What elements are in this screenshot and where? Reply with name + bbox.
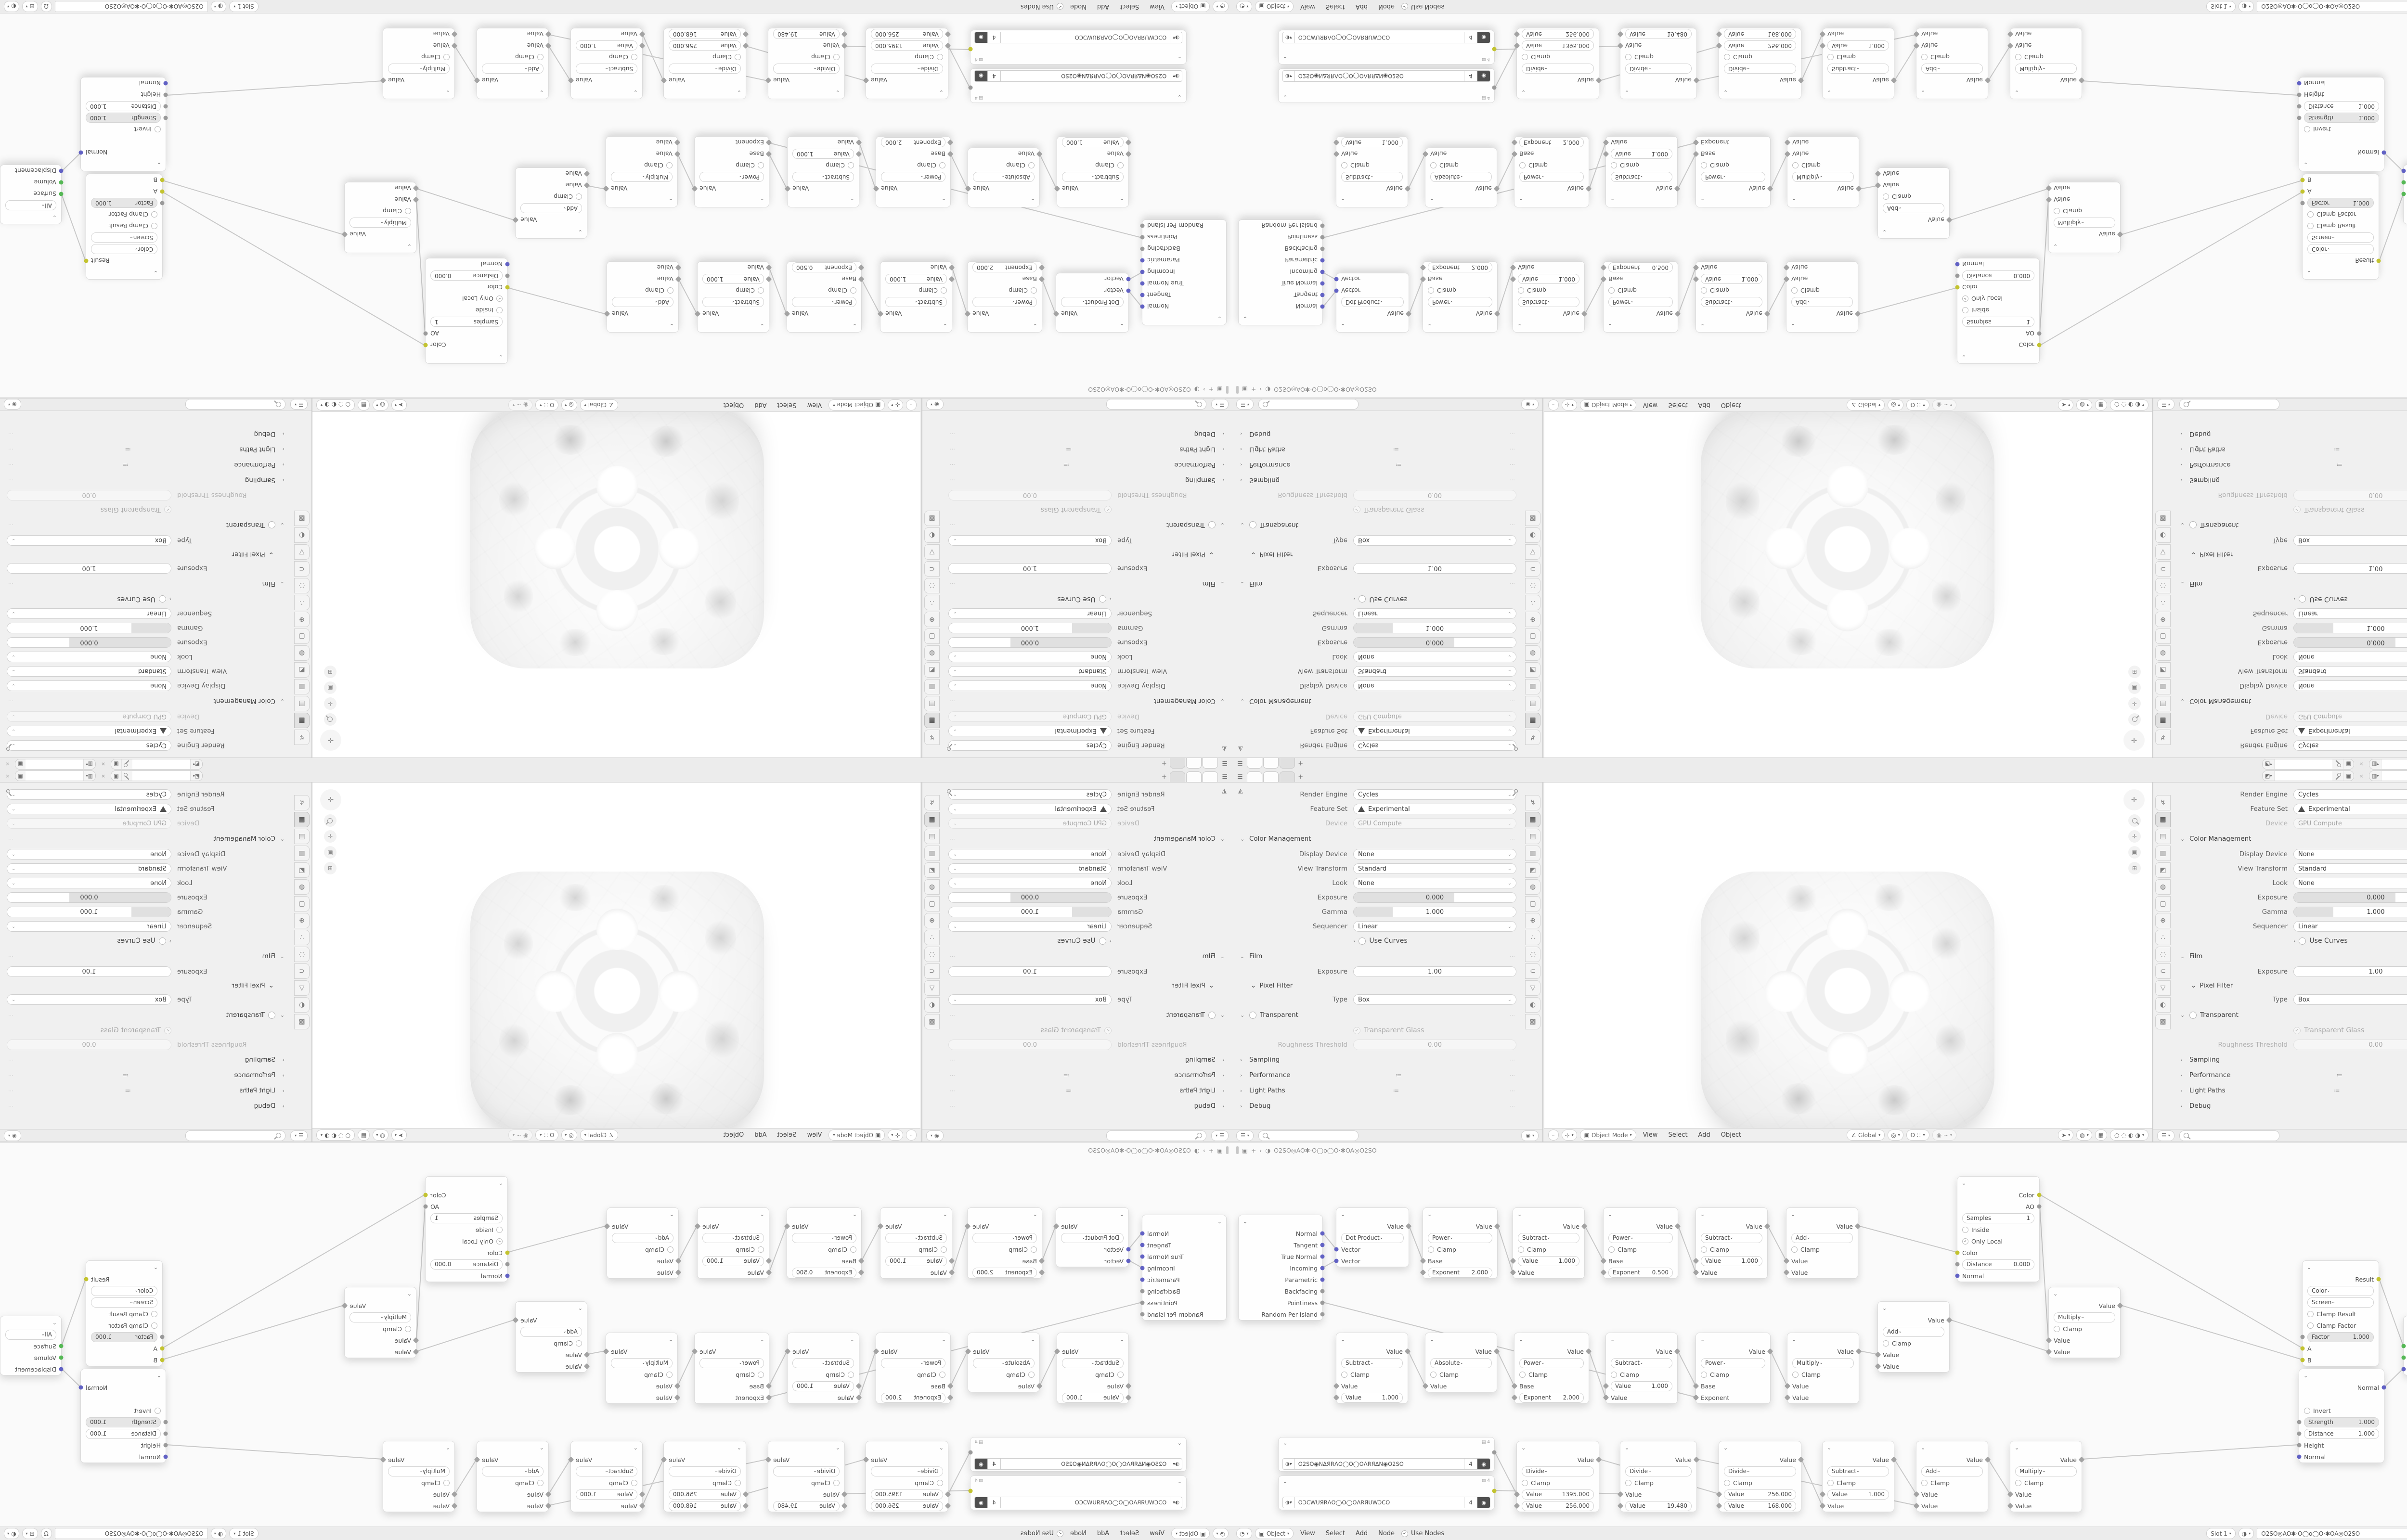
- checkbox-clamp[interactable]: [848, 1372, 854, 1378]
- pin-icon[interactable]: [2332, 771, 2343, 781]
- panel-section-film[interactable]: ⌄Film⋯: [944, 948, 1230, 964]
- node-divide[interactable]: ⌄ValueDivide⌄ClampValueValue19.480: [1620, 1441, 1697, 1512]
- node-dropdown-add[interactable]: Add⌄: [612, 297, 673, 308]
- node-header[interactable]: ⌄▤ 4: [1279, 1437, 1494, 1448]
- node-field-value[interactable]: Value168.000: [1724, 1501, 1796, 1511]
- node-header[interactable]: ⌄: [571, 1441, 642, 1454]
- node-header[interactable]: ⌄: [1606, 1333, 1677, 1346]
- select-sequencer[interactable]: Linear⌄: [948, 608, 1112, 619]
- node-field-samples[interactable]: Samples1: [430, 1213, 503, 1223]
- node-dropdown-divide[interactable]: Divide⌄: [1625, 1466, 1692, 1476]
- add-workspace-button[interactable]: +: [1296, 758, 1306, 768]
- use-nodes-checkbox[interactable]: ✓: [1401, 1530, 1408, 1537]
- node-dropdown-divide[interactable]: Divide⌄: [1522, 64, 1594, 74]
- socket-out[interactable]: [1320, 1232, 1325, 1236]
- node-field-value[interactable]: Value1.000: [1518, 1256, 1579, 1266]
- checkbox-inside[interactable]: [496, 1227, 503, 1233]
- panel-section-film[interactable]: ⌄Film⋯: [2, 576, 290, 592]
- xray-icon[interactable]: ▦: [358, 399, 370, 411]
- menu-view[interactable]: View: [1639, 401, 1662, 409]
- node-dropdown-subtract[interactable]: Subtract⌄: [1518, 1233, 1579, 1243]
- socket-in[interactable]: [505, 262, 510, 267]
- checkbox-clamp[interactable]: [1117, 1372, 1124, 1378]
- search-input[interactable]: [2179, 399, 2279, 410]
- socket-out[interactable]: [969, 1450, 973, 1455]
- socket-out[interactable]: [1492, 1489, 1497, 1493]
- view-layer-selector[interactable]: ▥▾ ▣: [15, 770, 96, 781]
- node-dropdown-multiply[interactable]: Multiply⌄: [611, 172, 673, 182]
- panel-section-light-paths[interactable]: ›Light Paths≔⋯: [944, 442, 1230, 457]
- shading-mode-group[interactable]: ○ ◌ ◐ ◑ ▾: [316, 1129, 355, 1141]
- menu-view[interactable]: View: [1146, 1530, 1168, 1537]
- socket-in[interactable]: [505, 1251, 510, 1255]
- panel-section-light-paths[interactable]: ›Light Paths≔⋯: [2, 1083, 290, 1098]
- checkbox-clamp[interactable]: [758, 163, 764, 169]
- properties-tab-tool[interactable]: ↯: [2155, 730, 2171, 745]
- select-feature-set[interactable]: Experimental⌄: [1353, 726, 1516, 736]
- node-header[interactable]: ⌄: [1957, 1177, 2039, 1189]
- select-feature-set[interactable]: Experimental⌄: [7, 804, 171, 814]
- navigation-gizmo[interactable]: ✛: [320, 730, 341, 751]
- properties-tab-object[interactable]: ▢: [924, 896, 940, 911]
- panel-section-performance[interactable]: ›Performance≔⋯: [944, 457, 1230, 473]
- select-display-device[interactable]: None⌄: [1353, 849, 1516, 860]
- properties-tab-object[interactable]: ▢: [1525, 629, 1540, 644]
- socket-out[interactable]: [1140, 1278, 1145, 1282]
- node-dropdown-screen[interactable]: Screen⌄: [91, 233, 157, 243]
- fake-user-icon[interactable]: ◉: [974, 70, 987, 82]
- node-dropdown-add[interactable]: Add⌄: [1791, 297, 1853, 308]
- snapping-group[interactable]: Ω∷▾: [1906, 1129, 1929, 1141]
- menu-select[interactable]: Select: [1116, 1530, 1143, 1537]
- properties-tab-texture[interactable]: ▩: [924, 1014, 940, 1029]
- node-image-texture[interactable]: ⌄▤ 4◑▾O2SO◉NΔЯRΛO◯O◯OΛRЯΔN◉O2SO4◉: [1278, 1437, 1495, 1472]
- grid-toggle-icon[interactable]: ⊞: [324, 666, 336, 678]
- node-field-factor[interactable]: Factor1.000: [2307, 1332, 2374, 1342]
- node-header[interactable]: ⌄: [1916, 86, 1988, 99]
- checkbox-transparent-glass[interactable]: ✓: [1353, 1027, 1360, 1034]
- panel-section-performance[interactable]: ›Performance≔⋯: [2174, 457, 2407, 473]
- select-render-engine[interactable]: Cycles⌄: [2293, 789, 2407, 800]
- node-header[interactable]: ⌄: [606, 1333, 677, 1346]
- node-field-value[interactable]: Value1.000: [576, 1489, 637, 1500]
- checkbox-clamp[interactable]: [1341, 163, 1347, 169]
- node-subtract[interactable]: ⌄ValueSubtract⌄ClampValue1.000Value: [787, 1333, 859, 1404]
- properties-tab-modifiers[interactable]: ⊕: [924, 913, 940, 928]
- node-dropdown-subtract[interactable]: Subtract⌄: [1611, 1358, 1672, 1368]
- node-field-value[interactable]: Value256.000: [1724, 1489, 1796, 1500]
- checkbox-clamp-factor[interactable]: [151, 212, 157, 218]
- node-generic[interactable]: ⌄NormalInvertStrength1.000Distance1.000H…: [2299, 1369, 2384, 1463]
- filter-icon[interactable]: ☰▾: [1236, 1130, 1254, 1141]
- socket-out[interactable]: [2037, 1205, 2042, 1209]
- node-field-distance[interactable]: Distance1.000: [86, 1429, 161, 1439]
- select-device[interactable]: GPU Compute⌄: [7, 711, 171, 722]
- app-menu-icon[interactable]: ☰: [1222, 759, 1228, 767]
- socket-out[interactable]: [1320, 1301, 1325, 1305]
- checkbox-clamp[interactable]: [758, 1372, 764, 1378]
- socket-out[interactable]: [1320, 293, 1325, 297]
- panel-section-debug[interactable]: ›Debug⋯: [944, 426, 1230, 442]
- socket-out[interactable]: [1320, 235, 1325, 240]
- view-layer-name-field[interactable]: [2381, 759, 2407, 769]
- checkbox-clamp[interactable]: [405, 208, 411, 215]
- node-subtract[interactable]: ⌄ValueSubtract⌄ClampValue1.000Value: [1513, 1207, 1585, 1279]
- socket-in[interactable]: [164, 1443, 168, 1448]
- properties-tab-tool[interactable]: ↯: [294, 730, 310, 745]
- node-header[interactable]: ⌄▤ 4: [1279, 92, 1494, 103]
- navigation-gizmo[interactable]: ✛: [2123, 730, 2145, 751]
- panel-section-debug[interactable]: ›Debug⋯: [2174, 426, 2407, 442]
- node-power[interactable]: ⌄ValuePower⌄ClampBaseExponent: [694, 136, 769, 207]
- filter-options-icon[interactable]: ◉▾: [926, 1130, 944, 1141]
- panel-subsection-pixel-filter[interactable]: ⌄Pixel Filter: [2174, 979, 2407, 992]
- checkbox-transparent-glass[interactable]: ✓: [2293, 506, 2301, 513]
- properties-tab-world[interactable]: ◍: [294, 645, 310, 661]
- checkbox-use-curves[interactable]: [1359, 937, 1366, 945]
- node-dropdown-power[interactable]: Power⌄: [1701, 172, 1765, 182]
- node-header[interactable]: ⌄: [1056, 320, 1128, 332]
- node-header[interactable]: ⌄: [788, 1333, 859, 1346]
- node-header[interactable]: ⌄: [477, 1441, 548, 1454]
- properties-tab-world[interactable]: ◍: [924, 645, 940, 661]
- node-header[interactable]: ⌄: [695, 1333, 769, 1346]
- pin-icon[interactable]: [7, 789, 13, 795]
- shading-rendered-icon[interactable]: ◑: [2135, 402, 2140, 409]
- socket-out[interactable]: [84, 1277, 89, 1282]
- node-header[interactable]: ⌄: [0, 211, 61, 224]
- properties-tab-physics[interactable]: ◌: [2155, 947, 2171, 962]
- checkbox-clamp[interactable]: [1701, 163, 1707, 169]
- properties-tab-output[interactable]: ▤: [924, 696, 940, 711]
- checkbox-clamp[interactable]: [941, 1246, 947, 1253]
- node-dropdown-color[interactable]: Color⌄: [2307, 1286, 2374, 1296]
- use-nodes-checkbox[interactable]: ✓: [1057, 3, 1063, 10]
- socket-in[interactable]: [1955, 274, 1960, 278]
- field-roughness-threshold[interactable]: 0.00: [948, 490, 1112, 500]
- properties-tab-object[interactable]: ▢: [2155, 896, 2171, 911]
- select-view-transform[interactable]: Standard⌄: [2293, 666, 2407, 677]
- node-field-distance[interactable]: Distance0.000: [1962, 271, 2034, 281]
- view-layer-name-field[interactable]: [26, 759, 83, 769]
- editor-3d-viewport-icon[interactable]: ⊹▾: [1562, 399, 1577, 411]
- checkbox-clamp[interactable]: [1724, 54, 1730, 61]
- node-header[interactable]: ⌄: [664, 86, 746, 99]
- node-header[interactable]: ⌄: [698, 320, 769, 332]
- properties-tab-texture[interactable]: ▩: [2155, 511, 2171, 526]
- properties-tab-object-data[interactable]: ▽: [2155, 544, 2171, 560]
- node-power[interactable]: ⌄ValuePower⌄ClampBaseExponent2.000: [967, 1207, 1042, 1279]
- select-view-transform[interactable]: Standard⌄: [7, 863, 171, 874]
- node-header[interactable]: ⌄: [571, 86, 642, 99]
- properties-tab-material[interactable]: ◐: [924, 527, 940, 543]
- properties-tab-render[interactable]: ▦: [294, 812, 310, 827]
- menu-view[interactable]: View: [803, 1131, 826, 1139]
- node-power[interactable]: ⌄ValuePower⌄ClampBaseExponent2.000: [876, 136, 951, 207]
- checkbox-clamp[interactable]: [758, 1246, 764, 1253]
- checkbox-clamp[interactable]: [1625, 1480, 1631, 1486]
- node-field-value[interactable]: Value168.000: [669, 1501, 741, 1511]
- move-view-icon[interactable]: ✛: [324, 830, 336, 843]
- node-field-distance[interactable]: Distance0.000: [1962, 1259, 2034, 1270]
- node-header[interactable]: ⌄: [426, 1177, 507, 1189]
- fake-user-icon[interactable]: ◉: [974, 1497, 987, 1508]
- checkbox-clamp[interactable]: [941, 288, 947, 294]
- node-add[interactable]: ⌄ValueAdd⌄ClampValueValue: [607, 1207, 679, 1279]
- node-canvas[interactable]: ▣ + › ◑ O2SO◎AO✱·O◯o◯O·✱OA◎O2SO ⌄NormalT…: [0, 1142, 1232, 1527]
- duplicate-icon[interactable]: ▣: [15, 759, 25, 769]
- scene-icon[interactable]: ◩▾: [2263, 759, 2275, 769]
- select-display-device[interactable]: None⌄: [948, 680, 1112, 691]
- slot-dropdown[interactable]: Slot 1▾: [2206, 1, 2235, 12]
- node-field-value[interactable]: Value256.000: [871, 29, 943, 39]
- workspace-tab[interactable]: [1263, 758, 1279, 769]
- node-subtract[interactable]: ⌄ValueSubtract⌄ClampValue1.000Value: [1695, 261, 1768, 333]
- node-header[interactable]: ⌄: [968, 1333, 1039, 1346]
- node-header[interactable]: ⌄: [0, 1316, 61, 1329]
- socket-out[interactable]: [79, 1386, 83, 1390]
- node-add[interactable]: ⌄ValueAdd⌄ClampValueValue: [1877, 167, 1950, 239]
- properties-tab-physics[interactable]: ◌: [2155, 578, 2171, 593]
- image-icon[interactable]: ◑▾: [1282, 32, 1295, 43]
- socket-in[interactable]: [2402, 180, 2406, 185]
- socket-in[interactable]: [164, 1455, 168, 1459]
- node-dropdown-power[interactable]: Power⌄: [1428, 1233, 1492, 1243]
- panel-subsection-pixel-filter[interactable]: ⌄Pixel Filter: [2174, 548, 2407, 561]
- duplicate-icon[interactable]: ▣: [2343, 771, 2353, 781]
- node-dropdown-power[interactable]: Power⌄: [792, 1233, 856, 1243]
- node-field-distance[interactable]: Distance1.000: [2304, 1429, 2379, 1439]
- select-look[interactable]: None⌄: [7, 878, 171, 888]
- shading-material-icon[interactable]: ◐: [332, 402, 336, 409]
- filter-icon[interactable]: ☰▾: [1211, 1130, 1229, 1141]
- material-preview-icon[interactable]: ◐▾: [4, 1, 20, 12]
- field-roughness-threshold[interactable]: 0.00: [1353, 490, 1516, 500]
- node-dropdown-multiply[interactable]: Multiply⌄: [388, 64, 450, 74]
- select-render-engine[interactable]: Cycles⌄: [948, 740, 1112, 751]
- node-image-texture[interactable]: ⌄▤ 4◑▾O2SO◉NΔЯRΛO◯O◯OΛRЯΔN◉O2SO4◉: [970, 1437, 1187, 1472]
- mode-dropdown[interactable]: ▣ Object Mode▾: [828, 1129, 885, 1141]
- checkbox-clamp[interactable]: [1792, 1372, 1799, 1378]
- node-header[interactable]: ⌄: [1239, 1215, 1322, 1228]
- checkbox-clamp-result[interactable]: [2307, 223, 2314, 230]
- node-dropdown-divide[interactable]: Divide⌄: [871, 1466, 943, 1476]
- panel-section-color-management[interactable]: ⌄Color Management⋯: [2174, 831, 2407, 847]
- select-sequencer[interactable]: Linear⌄: [2293, 921, 2407, 932]
- field-gamma[interactable]: 1.000: [1353, 907, 1516, 917]
- node-generic[interactable]: ⌄NormalTangentTrue NormalIncomingParamet…: [1238, 219, 1323, 325]
- node-field-value[interactable]: Value1.000: [1518, 274, 1579, 284]
- node-dropdown-color[interactable]: Color⌄: [2307, 244, 2374, 255]
- node-add[interactable]: ⌄ValueAdd⌄ClampValueValue: [515, 1301, 587, 1373]
- socket-in[interactable]: [505, 1262, 510, 1267]
- checkbox-clamp[interactable]: [937, 54, 943, 61]
- checkbox-clamp[interactable]: [1117, 163, 1124, 169]
- menu-node[interactable]: Node: [1374, 3, 1398, 10]
- node-header[interactable]: ⌄: [1142, 312, 1226, 325]
- properties-tab-view-layer[interactable]: ▥: [294, 846, 310, 861]
- checkbox-invert[interactable]: [155, 127, 161, 133]
- pivot-icon[interactable]: ◎▾: [561, 1129, 577, 1141]
- node-header[interactable]: ⌄: [876, 194, 950, 207]
- scene-selector[interactable]: ◩▾ ▣: [111, 770, 203, 781]
- node-dropdown-subtract[interactable]: Subtract⌄: [792, 1358, 854, 1368]
- socket-out[interactable]: [1140, 282, 1145, 286]
- panel-section-color-management[interactable]: ⌄Color Management⋯: [2, 693, 290, 709]
- pin-icon[interactable]: [121, 771, 132, 781]
- checkbox-clamp[interactable]: [939, 1372, 945, 1378]
- checkbox-clamp[interactable]: [405, 1326, 411, 1332]
- menu-add[interactable]: Add: [751, 401, 770, 409]
- filter-icon[interactable]: ☰▾: [290, 1130, 308, 1141]
- properties-tab-output[interactable]: ▤: [2155, 829, 2171, 844]
- properties-tab-physics[interactable]: ◌: [924, 578, 940, 593]
- node-header[interactable]: ⌄: [1878, 1302, 1949, 1314]
- node-dropdown-subtract[interactable]: Subtract⌄: [885, 297, 947, 308]
- node-dropdown-multiply[interactable]: Multiply⌄: [1792, 1358, 1854, 1368]
- panel-subsection-pixel-filter[interactable]: ⌄Pixel Filter: [2, 548, 290, 561]
- node-generic[interactable]: ⌄NormalInvertStrength1.000Distance1.000H…: [80, 1369, 166, 1463]
- properties-tab-render[interactable]: ▦: [2155, 713, 2171, 728]
- socket-in[interactable]: [164, 1432, 168, 1436]
- node-header[interactable]: ⌄: [516, 1302, 587, 1314]
- editor-shader-icon[interactable]: ◔▾: [1213, 1, 1229, 12]
- image-user-count[interactable]: 4: [987, 1458, 1000, 1470]
- properties-tab-object[interactable]: ▢: [294, 629, 310, 644]
- properties-tab-view-layer[interactable]: ▥: [924, 679, 940, 694]
- filter-icon[interactable]: ☰▾: [1211, 399, 1229, 410]
- node-dropdown-subtract[interactable]: Subtract⌄: [1341, 1358, 1403, 1368]
- close-icon[interactable]: ×: [100, 761, 107, 768]
- filter-options-icon[interactable]: ◉▾: [4, 399, 21, 410]
- overlays-icon[interactable]: ◍▾: [2076, 399, 2092, 411]
- node-canvas[interactable]: ▣ + › ◑ O2SO◎AO✱·O◯o◯O·✱OA◎O2SO ⌄NormalT…: [0, 13, 1232, 398]
- checkbox-invert[interactable]: [2304, 127, 2310, 133]
- node-dropdown-dot-product[interactable]: Dot Product⌄: [1341, 297, 1404, 308]
- node-subtract[interactable]: ⌄ValueSubtract⌄ClampValue1.000Value: [787, 136, 859, 207]
- field-exposure[interactable]: 0.000: [948, 637, 1112, 648]
- node-field-strength[interactable]: Strength1.000: [86, 1417, 161, 1427]
- properties-tab-particles[interactable]: ∴: [924, 595, 940, 610]
- node-header[interactable]: ⌄: [1786, 1208, 1858, 1220]
- xray-icon[interactable]: ▦: [2095, 399, 2107, 411]
- properties-tab-particles[interactable]: ∴: [294, 930, 310, 945]
- node-field-value[interactable]: Value168.000: [1724, 29, 1796, 39]
- field-exposure[interactable]: 1.00: [1353, 966, 1516, 977]
- node-dropdown-absolute[interactable]: Absolute⌄: [973, 172, 1035, 182]
- node-dropdown-absolute[interactable]: Absolute⌄: [1430, 1358, 1492, 1368]
- checkbox-transparent-glass[interactable]: ✓: [1104, 506, 1112, 513]
- node-image-texture[interactable]: ⌄▤ 4◑▾O2SO◉NΔЯRΛO◯O◯OΛRЯΔN◉O2SO4◉: [1278, 68, 1495, 103]
- node-field-factor[interactable]: Factor1.000: [2307, 198, 2374, 208]
- checkbox-clamp-result[interactable]: [151, 1311, 157, 1317]
- field-exposure[interactable]: 1.00: [1353, 563, 1516, 574]
- node-add[interactable]: ⌄ValueAdd⌄ClampValueValue: [477, 1441, 549, 1512]
- node-power[interactable]: ⌄ValuePower⌄ClampBaseExponent0.500: [787, 1207, 862, 1279]
- node-dropdown-subtract[interactable]: Subtract⌄: [792, 172, 854, 182]
- properties-tab-output[interactable]: ▤: [924, 829, 940, 844]
- socket-out[interactable]: [1320, 1289, 1325, 1294]
- section-checkbox[interactable]: [268, 1012, 275, 1019]
- field-exposure[interactable]: 1.00: [7, 966, 171, 977]
- node-field-value[interactable]: Value256.000: [1724, 41, 1796, 51]
- node-dropdown-add[interactable]: Add⌄: [1791, 1233, 1853, 1243]
- node-header[interactable]: ⌄: [383, 1441, 454, 1454]
- panel-subsection-pixel-filter[interactable]: ⌄Pixel Filter: [944, 979, 1230, 992]
- checkbox-clamp[interactable]: [1028, 1372, 1035, 1378]
- properties-tab-modifiers[interactable]: ⊕: [294, 612, 310, 627]
- node-dot-product[interactable]: ⌄ValueDot Product⌄VectorVector: [1336, 273, 1409, 333]
- properties-tab-texture[interactable]: ▩: [294, 511, 310, 526]
- node-dropdown-subtract[interactable]: Subtract⌄: [1062, 172, 1124, 182]
- node-dropdown-subtract[interactable]: Subtract⌄: [1518, 297, 1579, 308]
- socket-in[interactable]: [2297, 116, 2302, 120]
- node-field-exponent[interactable]: Exponent0.500: [792, 263, 856, 273]
- properties-tab-view-layer[interactable]: ▥: [2155, 679, 2171, 694]
- collapse-header-icon[interactable]: ⌄: [1548, 399, 1559, 411]
- node-field-distance[interactable]: Distance0.000: [430, 1259, 503, 1270]
- node-add[interactable]: ⌄ValueAdd⌄ClampValueValue: [607, 261, 679, 333]
- node-header[interactable]: ⌄: [383, 86, 454, 99]
- socket-out[interactable]: [1320, 1266, 1325, 1270]
- checkbox-clamp[interactable]: [537, 54, 544, 61]
- add-workspace-button[interactable]: +: [1296, 772, 1306, 782]
- select-sequencer[interactable]: Linear⌄: [7, 608, 171, 619]
- field-roughness-threshold[interactable]: 0.00: [948, 1039, 1112, 1050]
- node-header[interactable]: ⌄: [2299, 1369, 2384, 1382]
- properties-tab-world[interactable]: ◍: [1525, 645, 1540, 661]
- checkbox-transparent-glass[interactable]: ✓: [164, 506, 171, 513]
- menu-add[interactable]: Add: [751, 1131, 770, 1139]
- node-dropdown-multiply[interactable]: Multiply⌄: [2054, 218, 2115, 228]
- node-header[interactable]: ⌄▤ 4: [971, 53, 1186, 64]
- node-field-value[interactable]: Value1.000: [885, 1256, 947, 1266]
- socket-out[interactable]: [1320, 224, 1325, 228]
- node-header[interactable]: ⌄: [477, 86, 548, 99]
- menu-add[interactable]: Add: [1695, 1131, 1714, 1139]
- filter-icon[interactable]: ☰▾: [2157, 1130, 2174, 1141]
- select-display-device[interactable]: None⌄: [7, 849, 171, 860]
- proportional-edit-group[interactable]: ◉ ~▾: [1932, 399, 1956, 411]
- magnet-icon[interactable]: Ω: [41, 1, 52, 12]
- field-exposure[interactable]: 1.00: [948, 966, 1112, 977]
- node-divide[interactable]: ⌄ValueDivide⌄ClampValueValue19.480: [768, 28, 845, 99]
- view-layer-name-field[interactable]: [26, 771, 83, 781]
- editor-3d-viewport-icon[interactable]: ⊹▾: [888, 399, 903, 411]
- shader-type-dropdown[interactable]: ▣ Object▾: [1255, 1, 1294, 12]
- checkbox-clamp[interactable]: [1608, 288, 1615, 294]
- node-multiply[interactable]: ⌄ValueMultiply⌄ClampValueValue: [2048, 182, 2121, 253]
- select-render-engine[interactable]: Cycles⌄: [7, 789, 171, 800]
- node-power[interactable]: ⌄ValuePower⌄ClampBaseExponent0.500: [1603, 1207, 1678, 1279]
- checkbox-clamp[interactable]: [1701, 288, 1707, 294]
- node-color[interactable]: ⌄ResultColor⌄Screen⌄Clamp ResultClamp Fa…: [2302, 1260, 2379, 1366]
- checkbox-clamp[interactable]: [848, 163, 854, 169]
- view-layer-name-field[interactable]: [2381, 771, 2407, 781]
- checkbox-clamp[interactable]: [850, 288, 856, 294]
- shader-type-dropdown[interactable]: ▣ Object▾: [1171, 1528, 1210, 1539]
- checkbox-clamp[interactable]: [1518, 288, 1524, 294]
- panel-section-performance[interactable]: ›Performance≔⋯: [944, 1067, 1230, 1083]
- duplicate-icon[interactable]: ▣: [111, 771, 121, 781]
- field-gamma[interactable]: 1.000: [948, 907, 1112, 917]
- node-image-texture[interactable]: ⌄▤ 4◑▾OƆCWUЯRΛO◯O◯OΛRЯUWƆCO4◉: [1278, 30, 1495, 64]
- node-header[interactable]: ⌄: [1336, 320, 1409, 332]
- add-workspace-button[interactable]: +: [1159, 758, 1169, 768]
- socket-out[interactable]: [424, 343, 428, 347]
- checkbox-clamp[interactable]: [1701, 1372, 1707, 1378]
- select-view-transform[interactable]: Standard⌄: [1353, 666, 1516, 677]
